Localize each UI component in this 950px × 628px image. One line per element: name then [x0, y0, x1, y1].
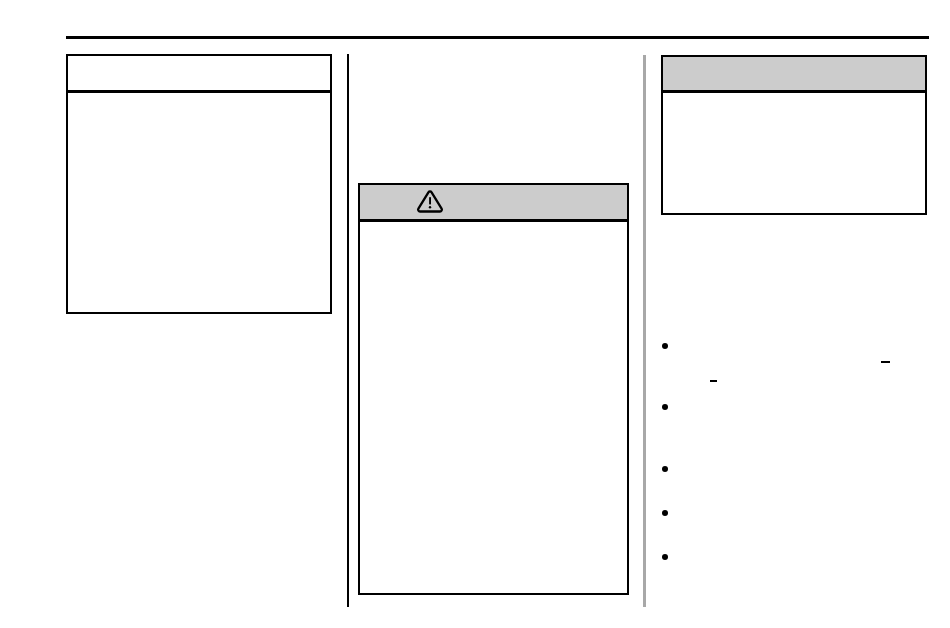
right-panel	[661, 55, 927, 215]
dash-mark	[710, 380, 717, 382]
document-page	[0, 0, 950, 628]
left-panel	[66, 54, 332, 314]
left-panel-header	[68, 56, 330, 93]
warning-triangle-icon	[416, 190, 444, 214]
bullet-icon	[662, 343, 668, 349]
bullet-icon	[662, 554, 668, 560]
dash-mark	[881, 361, 890, 363]
right-panel-header	[663, 57, 925, 93]
top-horizontal-rule	[66, 36, 929, 39]
bullet-icon	[662, 466, 668, 472]
column-divider-left	[347, 54, 349, 607]
caution-panel	[358, 183, 629, 595]
bullet-icon	[662, 404, 668, 410]
column-divider-right	[643, 55, 646, 607]
caution-panel-header	[360, 185, 627, 222]
bullet-icon	[662, 510, 668, 516]
